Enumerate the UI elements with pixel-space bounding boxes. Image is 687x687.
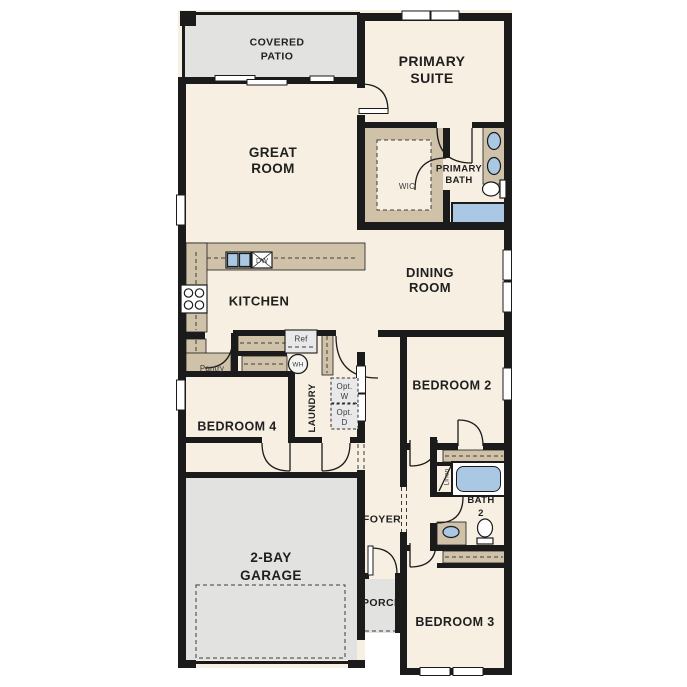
dining-window-b xyxy=(503,282,512,312)
floor-plan: COVERED PATIO PRIMARY SUITE GREAT ROOM W… xyxy=(0,0,687,687)
bedroom2-window xyxy=(503,368,512,400)
dining-window-a xyxy=(503,250,512,280)
covered-patio-label: COVERED xyxy=(250,37,305,49)
bath2-toilet-tank xyxy=(477,538,493,544)
primary-toilet-tank xyxy=(500,180,506,198)
primary-suite-label: SUITE xyxy=(410,70,453,86)
kitchen-sink-bowl-a xyxy=(228,254,239,267)
great-room-label: ROOM xyxy=(251,161,295,176)
garage-label: 2-BAY xyxy=(250,550,291,565)
primary-toilet-bowl xyxy=(483,182,500,196)
foyer-label: FOYER xyxy=(363,514,401,526)
primary-suite-label: PRIMARY xyxy=(399,53,466,69)
bath2-label: 2 xyxy=(478,508,484,519)
kitchen-counter-top xyxy=(186,243,365,270)
exterior-gap-below-porch xyxy=(365,633,400,687)
primary-suite-window-a xyxy=(402,11,430,20)
porch-label: PORCH xyxy=(362,597,402,609)
dining-room-label: ROOM xyxy=(409,280,451,295)
burner-icon xyxy=(184,301,192,309)
bedroom4-label: BEDROOM 4 xyxy=(197,420,276,434)
bedroom3-label: BEDROOM 3 xyxy=(415,615,494,629)
primary-suite-door-leaf xyxy=(359,109,388,114)
primary-sink-b xyxy=(488,158,501,175)
burner-icon xyxy=(184,289,192,297)
opt-washer-label: Opt. xyxy=(337,382,353,391)
primary-tub xyxy=(452,203,505,223)
great-room-label: GREAT xyxy=(249,145,298,160)
burner-icon xyxy=(195,301,203,309)
bath2-sink xyxy=(443,527,459,538)
floor-plan-canvas: COVERED PATIO PRIMARY SUITE GREAT ROOM W… xyxy=(0,0,687,687)
refrigerator-label: Ref xyxy=(294,335,308,344)
water-heater-label: WH xyxy=(292,362,303,369)
exterior-gap-below-garage xyxy=(178,668,365,687)
great-room-window xyxy=(177,195,186,225)
dining-room-label: DINING xyxy=(406,265,454,280)
laundry-label: LAUNDRY xyxy=(307,383,318,432)
primary-suite-window-b xyxy=(431,11,459,20)
bedroom4-window xyxy=(177,380,186,410)
bedroom2-label: BEDROOM 2 xyxy=(412,379,491,393)
garage-label: GARAGE xyxy=(240,568,302,583)
opt-dryer-label: D xyxy=(342,418,348,427)
kitchen-sink-bowl-b xyxy=(240,254,251,267)
burner-icon xyxy=(195,289,203,297)
hall-cabinet xyxy=(322,334,333,375)
bath2-toilet-bowl xyxy=(478,519,493,537)
bedroom3-window-a xyxy=(420,668,450,676)
kitchen-label: KITCHEN xyxy=(229,294,290,309)
wic-floor xyxy=(377,140,431,210)
patio-slider-b xyxy=(247,80,287,86)
opt-dryer-label: Opt. xyxy=(337,408,353,417)
primary-bath-label: PRIMARY xyxy=(436,164,483,175)
range-icon xyxy=(181,285,207,313)
primary-sink-a xyxy=(488,133,501,150)
pantry-label: Pantry xyxy=(200,364,224,373)
wic-label: WIC xyxy=(399,182,415,191)
front-door-leaf xyxy=(368,546,373,575)
patio-slider-c xyxy=(310,76,334,82)
bath2-label: BATH xyxy=(467,495,494,506)
dishwasher-label: DW xyxy=(256,258,268,265)
bedroom3-window-b xyxy=(453,668,483,676)
linen-label: Linen xyxy=(444,468,451,485)
primary-bath-label: BATH xyxy=(445,175,472,186)
covered-patio-label: PATIO xyxy=(261,51,294,63)
opt-washer-label: W xyxy=(341,392,349,401)
bath2-tub xyxy=(457,467,501,492)
